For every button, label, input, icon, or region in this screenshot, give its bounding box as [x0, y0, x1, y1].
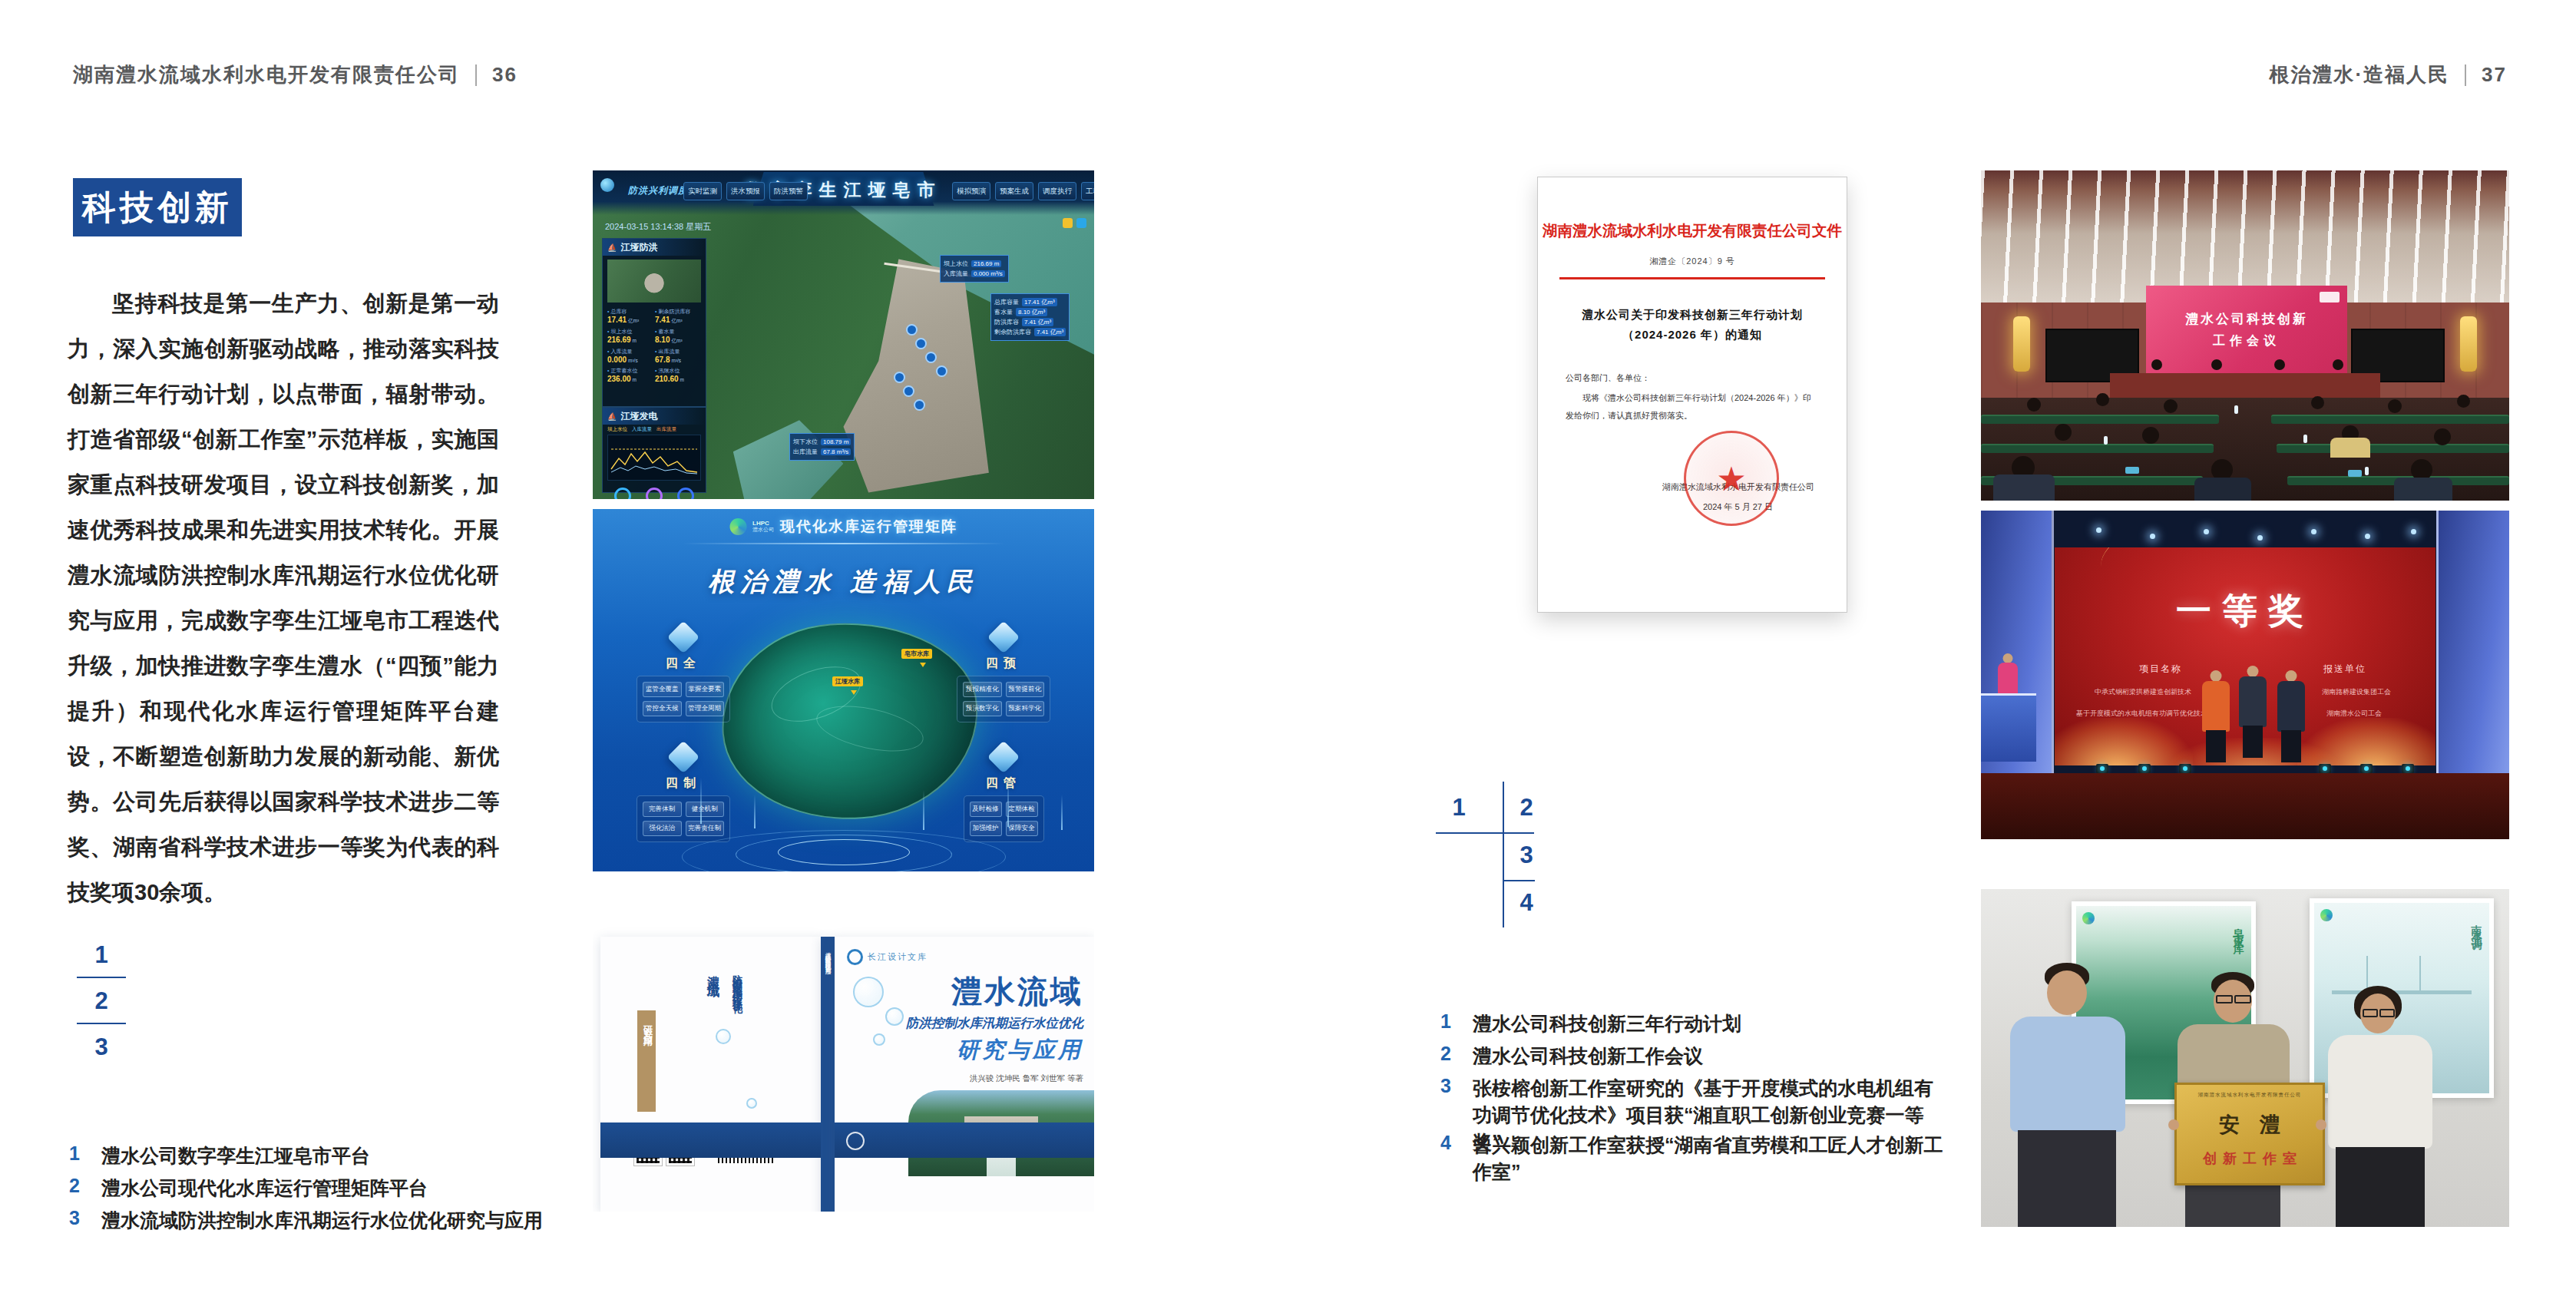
- lhpc-logo-icon: [729, 518, 746, 535]
- host-podium: [1981, 693, 2036, 762]
- light-pillar: [923, 790, 924, 830]
- dam-thumbnail[interactable]: [607, 260, 701, 303]
- book-title: 澧水流域: [910, 970, 1083, 1013]
- book-back-cover: 澧水流域 防洪控制水库汛期运行水位优化 研究与应用: [600, 937, 821, 1212]
- figure-marker-3: 3: [84, 1033, 118, 1061]
- gate-marker[interactable]: [914, 399, 925, 411]
- stage-light: [2204, 529, 2209, 534]
- wall-lamp: [2460, 316, 2477, 372]
- right-page-header: 根治澧水·造福人民 37: [2269, 61, 2507, 88]
- power-panel-header: ⛵ 江垭发电: [603, 408, 706, 425]
- reservoir-pin: [851, 690, 857, 695]
- stat-cell: 剩余防洪库容7.41亿m³: [654, 306, 702, 326]
- caption-number: 1: [69, 1142, 89, 1165]
- caption-number: 2: [1440, 1043, 1460, 1065]
- glasses-icon: [2234, 995, 2251, 1003]
- group-icon: [987, 621, 1020, 653]
- gate-marker[interactable]: [894, 372, 905, 383]
- reservoir-pin: [920, 663, 926, 667]
- award-title: 一等奖: [2055, 587, 2435, 635]
- star-icon: ★: [1716, 459, 1746, 498]
- person-pants: [2336, 1147, 2425, 1227]
- tooltip-upstream: 坝上水位216.69 m 入库流量0.000 m³/s: [940, 255, 1009, 283]
- marker-divider: [1503, 880, 1535, 881]
- water-bottle: [2365, 467, 2369, 475]
- gate-marker[interactable]: [936, 365, 947, 377]
- nav-button-simulation[interactable]: 模拟预演: [952, 182, 990, 200]
- group-sizhi: 四制 完善体制 健全机制 强化法治 完善责任制: [630, 746, 737, 842]
- figure-digital-twin-dashboard: 数字孪生江垭皂市 防洪兴利调度 实时监测 洪水预报 防洪预警 模拟预演 预案生成…: [593, 170, 1094, 499]
- glasses-icon: [2379, 1009, 2395, 1017]
- desk-row: [1981, 415, 2219, 424]
- attendee-head: [2142, 427, 2159, 444]
- document-body: 现将《澧水公司科技创新三年行动计划（2024-2026 年）》印发给你们，请认真…: [1566, 389, 1819, 425]
- group-name: 四管: [986, 775, 1021, 792]
- lhpc-logo-icon: [2320, 909, 2333, 921]
- light-pillar: [1007, 778, 1009, 827]
- platform-header: LHPC 澧水公司 现代化水库运行管理矩阵: [729, 517, 957, 537]
- group-name: 四制: [666, 775, 701, 792]
- caption-row: 4 曾兴颖创新工作室获授“湖南省直劳模和工匠人才创新工作室”: [1440, 1132, 1947, 1185]
- stat-cell: 总库容17.41亿m³: [607, 306, 654, 326]
- figure-book-cover: 澧水流域 防洪控制水库汛期运行水位优化 研究与应用 澧水流域防洪控制水库汛期运行…: [593, 883, 1094, 1212]
- flood-panel-title: 江垭防洪: [620, 241, 657, 254]
- person-legs: [2206, 730, 2225, 762]
- water-bubble: [746, 1098, 757, 1109]
- desk-row: [2271, 415, 2509, 424]
- attendee-head: [2434, 428, 2451, 445]
- attendee-head: [2164, 399, 2178, 413]
- caption-row: 1 澧水公司数字孪生江垭皂市平台: [69, 1142, 545, 1169]
- group-tags: 预报精准化 预警提前化 预演数字化 预案科学化: [957, 676, 1050, 722]
- nav-button-plan[interactable]: 预案生成: [995, 182, 1033, 200]
- book-authors: 洪兴骏 沈坤民 鲁军 刘世军 等著: [853, 1073, 1083, 1084]
- award-col1-header: 项目名称: [2139, 663, 2182, 676]
- caption-text: 澧水公司现代化水库运行管理矩阵平台: [101, 1175, 428, 1202]
- meeting-ceiling: [1981, 170, 2509, 303]
- presenter-suit: [2239, 666, 2267, 765]
- left-page-number: 36: [492, 63, 518, 87]
- plaque-company-line: 湖南澧水流域水利水电开发有限责任公司: [2177, 1092, 2323, 1099]
- map-label-jiangya[interactable]: 江垭水库: [832, 676, 863, 686]
- platform-title: 现代化水库运行管理矩阵: [780, 517, 957, 537]
- group-icon: [667, 621, 699, 653]
- document-subject-line2: （2024-2026 年）的通知: [1538, 328, 1847, 342]
- back-cover-subtitle: 防洪控制水库汛期运行水位优化: [730, 966, 744, 998]
- award-project-row: 中承式钢桁梁拱桥建造创新技术: [2095, 687, 2191, 697]
- award-col2-header: 报送单位: [2323, 663, 2366, 676]
- attendee-head: [2096, 393, 2109, 406]
- nav-button-warning[interactable]: 防洪预警: [769, 182, 808, 200]
- power-panel-title: 江垭发电: [620, 410, 657, 423]
- man-blue-polo: [2010, 1017, 2125, 1132]
- flood-stats-grid: 总库容17.41亿m³ 剩余防洪库容7.41亿m³ 坝上水位216.69m 蓄水…: [603, 306, 706, 385]
- awardee-orange: [2202, 670, 2230, 765]
- stage-fixture: [2096, 764, 2108, 773]
- nav-button-inspection[interactable]: 工程巡检: [1081, 182, 1094, 200]
- figure-marker-4: 4: [1510, 889, 1543, 917]
- stat-cell: 出库流量67.8m³/s: [654, 346, 702, 365]
- caption-number: 3: [69, 1207, 89, 1229]
- water-bottle: [2104, 436, 2108, 445]
- group-siyu: 四预 预报精准化 预警提前化 预演数字化 预案科学化: [950, 626, 1057, 722]
- brand-text: 长江设计文库: [868, 951, 928, 963]
- light-pillar: [700, 778, 702, 824]
- flood-panel: ⛵ 江垭防洪 总库容17.41亿m³ 剩余防洪库容7.41亿m³ 坝上水位216…: [602, 238, 706, 407]
- bridge-graphic: [2332, 990, 2472, 994]
- group-tags: 监管全覆盖 掌握全要素 管控全天候 管理全周期: [637, 676, 730, 722]
- stat-cell: 坝上水位216.69m: [607, 326, 654, 346]
- marker-divider: [77, 1023, 126, 1024]
- water-bubble: [716, 1029, 731, 1044]
- woman-white-tee: [2328, 1035, 2432, 1149]
- right-header-title: 根治澧水·造福人民: [2269, 61, 2449, 88]
- stage-light: [2096, 527, 2101, 533]
- spine-title: 澧水流域防洪控制水库汛期运行水位优化研究与应用: [824, 947, 832, 965]
- flood-panel-header: ⛵ 江垭防洪: [603, 239, 706, 256]
- stat-cell: 蓄水量8.10亿m³: [654, 326, 702, 346]
- header-glow-line: [683, 543, 1005, 544]
- gate-marker[interactable]: [903, 385, 914, 397]
- generator-gauges: [603, 485, 706, 499]
- stage-light: [2257, 535, 2263, 541]
- map-label-zaoshi[interactable]: 皂市水库: [901, 649, 932, 659]
- caption-text: 澧水公司科技创新三年行动计划: [1473, 1010, 1741, 1037]
- stat-cell: 正常蓄水位236.00m: [607, 365, 654, 385]
- photo-award-ceremony: 一等奖 项目名称 报送单位 中承式钢桁梁拱桥建造创新技术 基于开度模式的水电机组…: [1981, 511, 2509, 839]
- photo-studio-plaque: 皂市水库 南水北调: [1981, 889, 2509, 1227]
- section-body-paragraph: 坚持科技是第一生产力、创新是第一动力，深入实施创新驱动战略，推动落实科技创新三年…: [68, 281, 499, 915]
- caption-text: 澧水公司科技创新工作会议: [1473, 1043, 1703, 1070]
- back-cover-title: 澧水流域: [705, 966, 721, 978]
- person-legs: [2243, 726, 2262, 758]
- projection-screen: 澧水公司科技创新 工作会议: [2146, 286, 2347, 379]
- tooltip-downstream: 坝下水位108.79 m 出库流量67.8 m³/s: [789, 433, 855, 461]
- app-logo-icon: [600, 178, 614, 192]
- gate-marker[interactable]: [925, 352, 937, 363]
- attendee-shoulders: [2330, 438, 2370, 458]
- gauge-unit3: [677, 488, 694, 499]
- stage-light: [2311, 529, 2316, 534]
- caption-number: 3: [1440, 1075, 1460, 1097]
- water-bottle: [2234, 405, 2238, 414]
- figure-marker-3: 3: [1510, 841, 1543, 869]
- tissue-box: [2348, 470, 2362, 477]
- nav-button-realtime[interactable]: 实时监测: [683, 182, 722, 200]
- book-tail-title: 研究与应用: [910, 1035, 1083, 1066]
- speaker-head: [2151, 359, 2162, 370]
- caption-number: 4: [1440, 1132, 1460, 1154]
- bridge-pylon: [2419, 956, 2421, 994]
- caption-row: 1 澧水公司科技创新三年行动计划: [1440, 1010, 1947, 1037]
- section-title: 科技创新: [73, 178, 242, 236]
- magazine-spread: 湖南澧水流域水利水电开发有限责任公司 36 根治澧水·造福人民 37 科技创新 …: [0, 0, 2576, 1306]
- brand-logo-icon: [847, 949, 863, 965]
- group-siguan: 四管 及时检修 定期体检 加强维护 保障安全: [950, 746, 1057, 842]
- poster-left-title: 皂市水库: [2231, 920, 2245, 938]
- speaker-head: [2333, 359, 2343, 370]
- platform-slogan: 根治澧水 造福人民: [708, 564, 979, 600]
- water-bottle: [2303, 435, 2307, 443]
- group-icon: [667, 741, 699, 773]
- stage-light: [2411, 529, 2416, 534]
- person-head: [2286, 670, 2297, 682]
- water-bubble: [873, 1033, 885, 1046]
- nav-right-group: 模拟预演 预案生成 调度执行 工程巡检: [952, 182, 1094, 200]
- stage-fixture: [2360, 764, 2373, 773]
- left-page-header: 湖南澧水流域水利水电开发有限责任公司 36: [73, 61, 518, 88]
- plaque-subtitle: 创新工作室: [2177, 1149, 2323, 1168]
- chart-legend: 坝上水位 入库流量 出库流量: [603, 425, 706, 433]
- speaker-head: [2211, 359, 2222, 370]
- gate-marker[interactable]: [915, 338, 927, 349]
- attendee-shoulders: [1993, 474, 2055, 501]
- attendee-head: [2457, 395, 2470, 408]
- person-head: [2047, 970, 2087, 1015]
- award-unit-row: 湖南路桥建设集团工会: [2322, 687, 2391, 697]
- wall-lamp: [2013, 316, 2030, 372]
- tissue-box: [2125, 467, 2139, 474]
- figure-marker-1: 1: [1442, 794, 1476, 822]
- tooltip-capacity: 总库容量17.41 亿m³ 蓄水量8.10 亿m³ 防洪库容7.41 亿m³ 剩…: [990, 293, 1070, 341]
- power-panel: ⛵ 江垭发电 坝上水位 入库流量 出库流量: [602, 407, 706, 493]
- document-red-header: 湖南澧水流域水利水电开发有限责任公司文件: [1538, 220, 1847, 241]
- header-divider: [2465, 64, 2466, 86]
- stage-fixture: [2138, 764, 2151, 773]
- caption-row: 2 澧水公司科技创新工作会议: [1440, 1043, 1947, 1070]
- desk-row: [2277, 444, 2509, 453]
- publisher-brand: 长江设计文库: [847, 949, 928, 965]
- golden-plaque: 湖南澧水流域水利水电开发有限责任公司 安澧 创新工作室: [2174, 1083, 2325, 1185]
- sail-icon: ⛵: [607, 412, 617, 421]
- poster-right-title: 南水北调: [2469, 917, 2483, 935]
- official-red-seal: ★: [1684, 431, 1779, 526]
- settings-icon[interactable]: [1076, 218, 1086, 228]
- caption-text: 澧水公司数字孪生江垭皂市平台: [101, 1142, 370, 1169]
- plaque-title: 安澧: [2177, 1111, 2323, 1139]
- caption-text: 澧水流域防洪控制水库汛期运行水位优化研究与应用: [101, 1207, 543, 1234]
- person-head: [2247, 666, 2259, 677]
- photo-innovation-meeting: 澧水公司科技创新 工作会议: [1981, 170, 2509, 501]
- light-pillar: [754, 795, 756, 828]
- group-tags: 完善体制 健全机制 强化法治 完善责任制: [637, 795, 730, 842]
- group-name: 四预: [986, 656, 1021, 672]
- holding-hand: [2316, 1119, 2326, 1130]
- caption-row: 2 澧水公司现代化水库运行管理矩阵平台: [69, 1175, 545, 1202]
- lhpc-logo-icon: [2082, 912, 2095, 924]
- book-spine: 澧水流域防洪控制水库汛期运行水位优化研究与应用: [821, 937, 835, 1212]
- gauge-unit1: [614, 488, 631, 499]
- marker-divider-vertical: [1503, 782, 1504, 927]
- front-band: [835, 1122, 1094, 1158]
- logo-text: LHPC 澧水公司: [752, 521, 774, 533]
- nav-button-forecast[interactable]: 洪水预报: [726, 182, 765, 200]
- caption-row: 3 澧水流域防洪控制水库汛期运行水位优化研究与应用: [69, 1207, 561, 1234]
- person-head: [2211, 670, 2222, 682]
- figure-marker-1: 1: [84, 941, 118, 969]
- screen-title-line1: 澧水公司科技创新: [2146, 310, 2347, 328]
- group-name: 四全: [666, 656, 701, 672]
- water-bubble: [853, 977, 884, 1007]
- nav-mode-label: 防洪兴利调度: [628, 184, 688, 197]
- publisher-logo-icon: [846, 1132, 865, 1150]
- book-subtitle: 防洪控制水库汛期运行水位优化: [853, 1015, 1083, 1032]
- award-unit-row: 湖南澧水公司工会: [2326, 709, 2382, 719]
- figure-matrix-platform: LHPC 澧水公司 现代化水库运行管理矩阵 根治澧水 造福人民 江垭水库 皂市水…: [593, 509, 1094, 871]
- right-page-number: 37: [2482, 63, 2507, 87]
- stage-fixture: [2319, 764, 2331, 773]
- stat-cell: 汛限水位210.60m: [654, 365, 702, 385]
- group-icon: [987, 741, 1020, 773]
- screen-title-line2: 工作会议: [2146, 333, 2347, 349]
- rostrum-table: [2110, 373, 2380, 398]
- book-front-cover: 长江设计文库 澧水流域 防洪控制水库汛期运行水位优化 研究与应用 洪兴骏 沈坤民…: [835, 937, 1094, 1212]
- dashboard-datetime: 2024-03-15 13:14:38 星期五: [605, 221, 711, 233]
- person-pants: [2018, 1130, 2116, 1227]
- figure-marker-2: 2: [84, 987, 118, 1015]
- awardee-navy: [2277, 670, 2305, 765]
- back-cover-tail: 研究与应用: [641, 1018, 654, 1033]
- stage-light: [2365, 534, 2370, 539]
- award-project-row: 基于开度模式的水电机组有功调节优化技术: [2076, 709, 2207, 719]
- nav-left-group: 实时监测 洪水预报 防洪预警: [683, 182, 808, 200]
- attendee-shoulders: [2394, 478, 2452, 501]
- figure-official-document: 湖南澧水流域水利水电开发有限责任公司文件 湘澧企〔2024〕9 号 澧水公司关于…: [1537, 177, 1847, 613]
- person-body: [2202, 681, 2230, 732]
- stage-floor: [1981, 773, 2509, 839]
- attendee-shoulders: [2194, 478, 2251, 501]
- sail-icon: ⛵: [607, 243, 617, 252]
- nav-button-dispatch[interactable]: 调度执行: [1038, 182, 1076, 200]
- group-siquan: 四全 监管全覆盖 掌握全要素 管控全天候 管理全周期: [630, 626, 737, 722]
- marker-divider: [1436, 832, 1534, 834]
- holding-hand: [2168, 1119, 2179, 1130]
- person-body: [2239, 676, 2267, 727]
- attendee-head: [2388, 399, 2402, 413]
- gauge-unit2: [646, 488, 663, 499]
- screen-logo: [2320, 292, 2340, 303]
- figure-marker-2: 2: [1510, 794, 1543, 822]
- light-pillar: [1061, 795, 1063, 830]
- document-salutation: 公司各部门、各单位：: [1566, 369, 1819, 387]
- gate-marker[interactable]: [906, 324, 918, 336]
- group-tags: 及时检修 定期体检 加强维护 保障安全: [964, 795, 1044, 842]
- back-band: [600, 1122, 821, 1158]
- red-rule: [1559, 277, 1825, 279]
- stage-light: [2150, 534, 2155, 539]
- stat-cell: 入库流量0.000m³/s: [607, 346, 654, 365]
- attendee-head: [2027, 398, 2041, 412]
- attendee-head: [2055, 424, 2072, 441]
- caption-number: 2: [69, 1175, 89, 1197]
- glasses-icon: [2363, 1009, 2378, 1017]
- document-subject-line1: 澧水公司关于印发科技创新三年行动计划: [1538, 308, 1847, 322]
- speaker-head: [2274, 359, 2285, 370]
- document-number: 湘澧企〔2024〕9 号: [1538, 256, 1847, 267]
- desk-row: [1981, 444, 2214, 453]
- header-divider: [475, 64, 477, 86]
- person-body: [2277, 681, 2305, 732]
- caption-number: 1: [1440, 1010, 1460, 1033]
- caption-text: 曾兴颖创新工作室获授“湖南省直劳模和工匠人才创新工作室”: [1473, 1132, 1947, 1185]
- person-legs: [2281, 730, 2300, 762]
- marker-divider: [77, 977, 126, 978]
- left-header-title: 湖南澧水流域水利水电开发有限责任公司: [73, 61, 460, 88]
- stage-fixture: [2402, 764, 2414, 773]
- user-icon[interactable]: [1063, 218, 1073, 228]
- back-cover-tail-block: 研究与应用: [637, 1010, 656, 1112]
- water-level-chart: [607, 435, 701, 481]
- glasses-icon: [2216, 995, 2233, 1003]
- attendee-head: [2311, 396, 2324, 409]
- stage-fixture: [2179, 764, 2191, 773]
